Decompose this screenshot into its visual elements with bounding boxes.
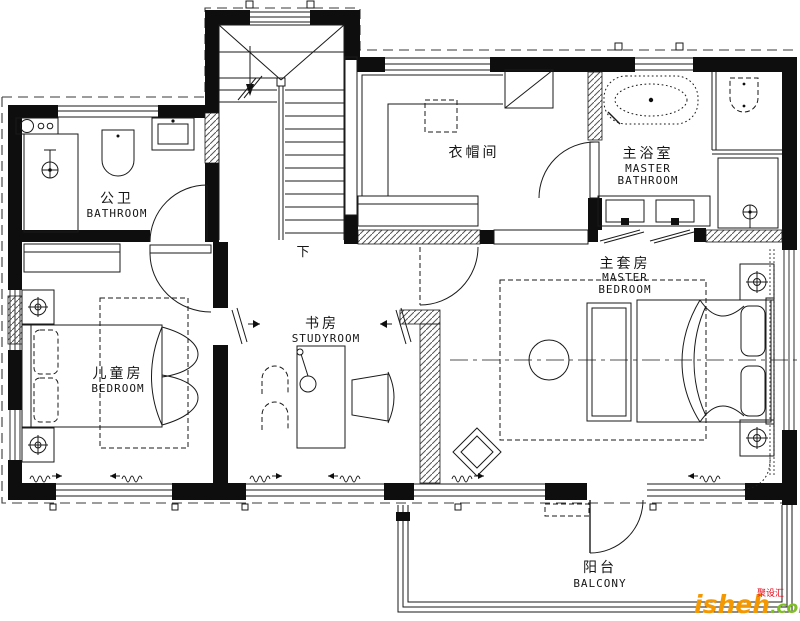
- bathtub-icon: [604, 76, 698, 124]
- floorplan-svg: 下 公卫 BATHROOM: [0, 0, 800, 621]
- door-arc: [539, 142, 599, 198]
- curtain-symbols: [30, 473, 720, 482]
- room-label-en: STUDYROOM: [292, 332, 361, 345]
- room-kids-bedroom: 儿童房 BEDROOM: [22, 244, 211, 462]
- guest-chairs: [262, 366, 288, 430]
- watermark-tld: .com: [770, 598, 800, 618]
- window: [246, 484, 384, 496]
- window: [58, 106, 158, 117]
- pillow: [34, 378, 58, 422]
- wardrobe: [24, 244, 120, 272]
- washer-icon: [16, 118, 58, 134]
- stairs-direction-label: 下: [296, 245, 309, 260]
- room-label: 儿童房: [93, 365, 144, 382]
- window: [10, 410, 20, 460]
- room-label-en: BEDROOM: [598, 283, 651, 296]
- sliding-door: [232, 308, 260, 344]
- ottoman: [453, 428, 501, 476]
- floorplan-image: 下 公卫 BATHROOM: [0, 0, 800, 621]
- window: [635, 58, 693, 70]
- pillow: [34, 330, 58, 374]
- cabinet: [358, 196, 478, 226]
- desk: [297, 346, 345, 448]
- sliding-door: [600, 230, 694, 243]
- window: [56, 484, 172, 496]
- room-label-en: BALCONY: [573, 577, 626, 590]
- watermark-tag: 聚设汇: [757, 588, 784, 599]
- curtain: [768, 248, 776, 476]
- window: [414, 484, 545, 496]
- room-study: 书房 STUDYROOM: [232, 308, 394, 448]
- svg-text:isheh.com: isheh.com: [694, 590, 800, 619]
- sink-icon: [152, 118, 194, 150]
- room-label: 公卫: [100, 191, 134, 207]
- wardrobe: [362, 75, 503, 196]
- room-label: 主套房: [600, 256, 651, 272]
- wall-hatched: [400, 310, 440, 324]
- window: [250, 12, 310, 22]
- room-cloakroom: 衣帽间: [358, 70, 599, 226]
- balcony-door-arc: [545, 500, 643, 553]
- window: [784, 250, 794, 430]
- wardrobe-island: [425, 100, 457, 132]
- office-chair: [352, 372, 394, 423]
- watermark: isheh.com 聚设汇: [694, 588, 800, 619]
- room-label-en: BATHROOM: [618, 174, 679, 187]
- desk-lamp-icon: [297, 349, 316, 392]
- shower-icon: [718, 158, 778, 228]
- toilet-icon: [730, 78, 758, 112]
- walls: [8, 10, 797, 505]
- nightstand: [22, 428, 54, 462]
- room-public-bathroom: 公卫 BATHROOM: [16, 118, 207, 242]
- door-arc: [150, 185, 207, 242]
- bench: [587, 303, 631, 421]
- room-master-bedroom: 主套房 MASTER BEDROOM: [380, 247, 797, 490]
- entry-door-arc: [420, 247, 478, 305]
- toilet-icon: [102, 130, 134, 176]
- pillow: [741, 306, 765, 356]
- stairs: 下: [219, 25, 344, 260]
- room-label: 衣帽间: [449, 145, 500, 161]
- nightstand: [22, 290, 54, 324]
- door-arc: [150, 245, 211, 312]
- room-master-bathroom: 主浴室 MASTER BATHROOM: [598, 72, 782, 228]
- mirror-cabinet: [505, 70, 553, 108]
- room-label-en: BEDROOM: [91, 382, 144, 395]
- room-label: 阳台: [583, 560, 617, 576]
- room-label-en: BATHROOM: [87, 207, 148, 220]
- room-label: 书房: [305, 316, 339, 332]
- window: [647, 484, 745, 496]
- pillow: [741, 366, 765, 416]
- down-arrow-icon: [238, 46, 262, 100]
- wall-hatched: [420, 324, 440, 483]
- double-vanity: [598, 196, 710, 226]
- shower-icon: [24, 134, 78, 232]
- window: [385, 58, 490, 70]
- room-label: 主浴室: [623, 145, 674, 162]
- partition: [712, 72, 782, 154]
- property-line: [2, 1, 795, 510]
